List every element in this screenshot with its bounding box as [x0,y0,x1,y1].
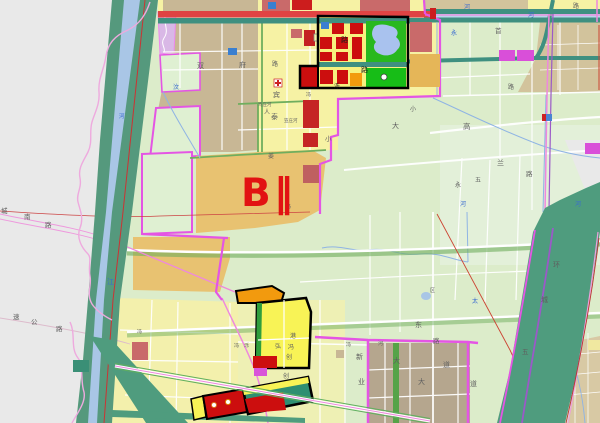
map-label: 城 [541,296,548,304]
map-label: 公 [31,318,38,326]
map-label: 双 [197,62,204,70]
map-label: 路 [508,83,514,91]
map-label: 弘 [275,342,281,350]
map-label: 冯 [234,342,239,349]
region-code-label: B‖ [241,174,296,213]
map-label: 姜 [268,152,274,160]
utility-marker-icon [381,74,387,80]
map-label: 泺 [244,342,249,349]
map-label: 道 [443,360,450,369]
map-label: 笠庄河 [284,117,298,124]
planning-map-canvas: 河路双府路路路泺首永河汶宾笃庄河人泰笠庄河姜小大高小路冯冯兰路永五河河环城五东区… [0,0,600,423]
map-label: 泰 [271,112,278,121]
map-label: 道 [470,379,477,388]
hospital-icon [274,79,282,87]
map-label: 路 [433,336,440,345]
site-marker-icon [226,400,231,405]
map-label: 南 [24,212,31,221]
map-label: 宾 [273,90,280,99]
map-label: 江 [107,278,114,286]
map-label: 泺 [334,82,340,90]
map-label: 路 [341,35,348,44]
map-label: 太 [472,297,478,305]
map-label: 冯 [346,341,351,348]
map-label: 创 [286,353,292,361]
map-label: 河 [378,340,383,347]
map-label: 路 [526,169,533,178]
map-label: 大 [418,377,425,386]
map-label: 笃庄河 [258,101,272,108]
map-label: 首 [495,26,502,35]
map-label: 高 [463,121,471,131]
map-label: 路 [573,2,579,10]
map-label: 业 [358,377,365,386]
map-label: 河 [528,11,534,19]
map-label: 河 [575,200,581,208]
map-label: 速 [13,313,20,321]
map-label: 河 [119,112,125,120]
map-viewport[interactable]: 河路双府路路路泺首永河汶宾笃庄河人泰笠庄河姜小大高小路冯冯兰路永五河河环城五东区… [0,0,600,423]
map-label: 区 [430,288,435,294]
map-label: 兰 [497,158,504,167]
map-label: 路 [56,324,63,333]
map-label: 大 [393,356,400,365]
map-label: 大 [392,121,399,130]
map-label: 新 [356,352,363,361]
lake [372,25,400,56]
map-label: 小 [410,105,416,113]
map-label: 河 [464,3,470,11]
map-label: 冯 [137,328,142,335]
map-label: 永 [451,29,457,37]
map-label: 城 [1,207,8,215]
map-label: 东 [415,320,422,329]
map-label: 河 [460,200,466,208]
map-label: 汶 [173,83,179,91]
map-label: 路 [272,60,278,68]
map-label: 小 [325,134,332,143]
site-marker-icon [212,403,217,408]
map-label: 府 [239,60,246,69]
map-label: 港 [290,332,296,340]
map-label: 环 [553,261,560,269]
map-label: 路 [361,65,368,74]
map-label: 五 [522,348,529,356]
map-label: 人 [264,109,270,116]
map-label: 冯 [306,91,311,98]
map-label: 永 [455,181,461,189]
map-label: 五 [475,177,481,184]
map-label: 创 [283,372,289,380]
map-label: 路 [45,220,52,229]
map-label: 冯 [288,343,294,351]
